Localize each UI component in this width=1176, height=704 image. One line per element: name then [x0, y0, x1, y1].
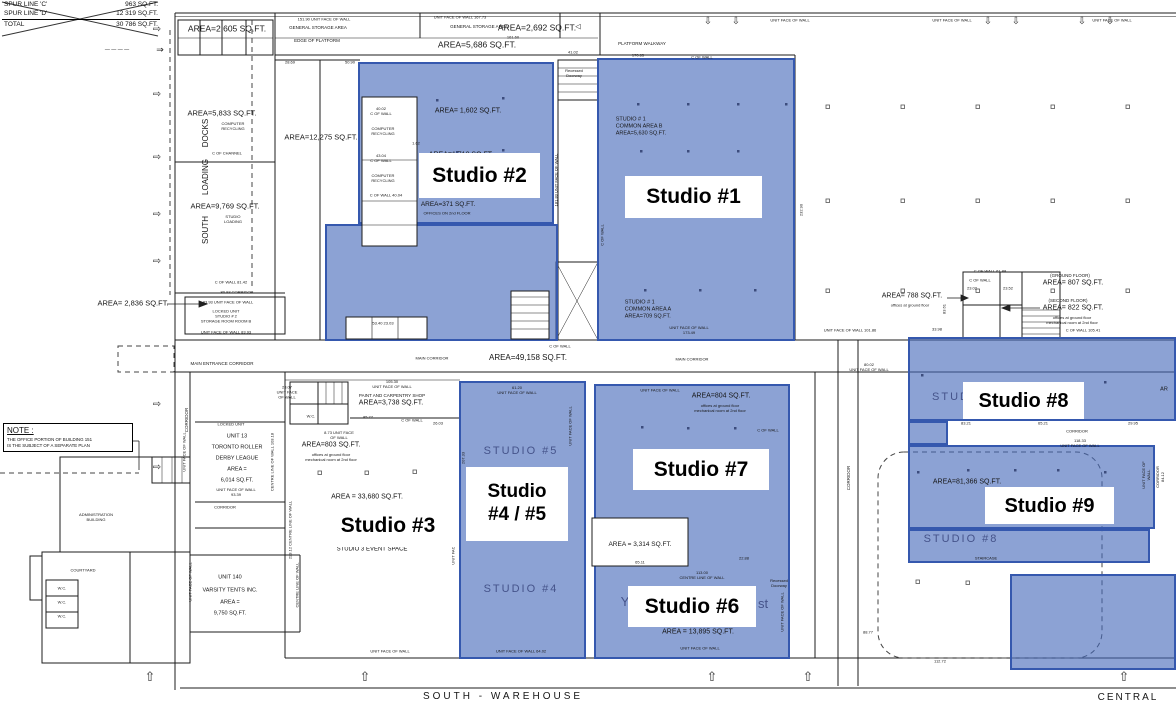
- top-wall-arrow-icon: ⇩: [984, 16, 992, 29]
- left-wall-arrow-icon: ⇨: [153, 89, 161, 102]
- top-wall-arrow-icon: ⇩: [704, 16, 712, 29]
- floor-plan: AREA=2,605 SQ.FT.151.90 UNIT FACE OF WAL…: [0, 0, 1176, 704]
- exit-arrow-icon: ⇧: [360, 669, 371, 685]
- left-wall-arrow-icon: ⇨: [153, 152, 161, 165]
- left-wall-arrow-icon: ⇨: [153, 24, 161, 37]
- left-wall-arrow-icon: ⇨: [153, 462, 161, 475]
- top-wall-arrow-icon: ⇩: [1012, 16, 1020, 29]
- left-wall-arrow-icon: ⇨: [153, 399, 161, 412]
- top-wall-arrow-icon: ⇩: [1078, 16, 1086, 29]
- left-wall-arrow-icon: ⇨: [153, 209, 161, 222]
- exit-arrow-icon: ⇧: [145, 669, 156, 685]
- exit-arrow-icon: ⇧: [707, 669, 718, 685]
- top-wall-arrow-icon: ⇩: [1106, 16, 1114, 29]
- exit-arrow-icon: ⇧: [803, 669, 814, 685]
- top-wall-arrow-icon: ⇩: [732, 16, 740, 29]
- exit-arrow-icon: ⇧: [1119, 669, 1130, 685]
- arrows-layer: ⇨⇨⇨⇨⇨⇨⇨⇩⇩⇩⇩⇩⇩⇧⇧⇧⇧⇧: [0, 0, 1176, 704]
- left-wall-arrow-icon: ⇨: [153, 256, 161, 269]
